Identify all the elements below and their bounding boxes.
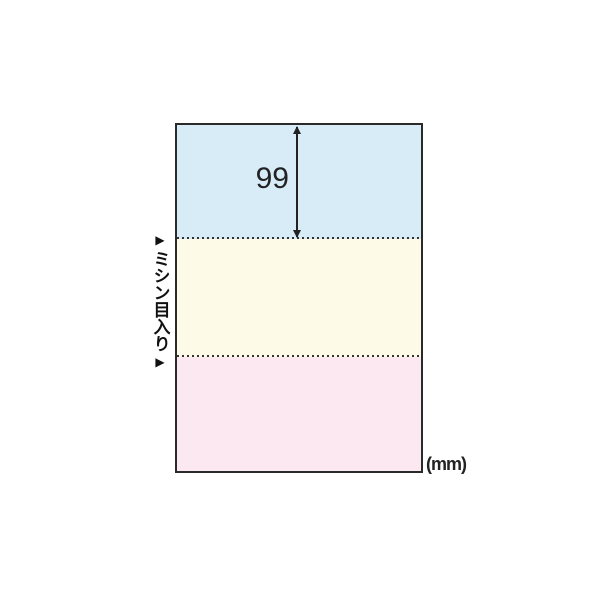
arrow-shaft — [296, 127, 298, 237]
perforation-label-text: ミシン目入り — [152, 250, 169, 352]
dimension-value-label: 99 — [242, 164, 289, 194]
dimension-arrow — [292, 126, 301, 238]
paper-section-cream — [177, 239, 421, 357]
triangle-right-icon: ▶ — [155, 234, 164, 246]
triangle-right-icon: ▶ — [155, 356, 164, 368]
paper-section-pink — [177, 357, 421, 471]
perforation-line-bottom — [177, 355, 421, 357]
diagram-canvas: 99 ▶ ミシン目入り ▶ (mm) — [0, 0, 600, 600]
perforation-label-group: ▶ ミシン目入り ▶ — [147, 234, 173, 368]
unit-label: (mm) — [426, 454, 466, 475]
arrow-down-icon — [293, 230, 301, 238]
